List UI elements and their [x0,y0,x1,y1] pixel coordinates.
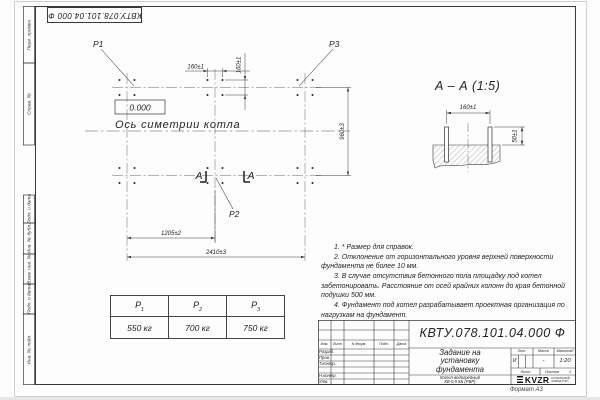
lit-value: И [511,355,518,368]
section-letter-right: А [246,170,254,182]
dim-full-span: 2410±3 [205,250,227,256]
load-header-p2: P2 [169,296,227,317]
load-label-p2: P2 [229,209,240,219]
margin-field-sprav-no: Справ. № [27,93,33,115]
plan-dimension-lines [127,53,351,257]
rev-col-podp: Подп. [374,340,394,349]
technical-notes: 1. * Размер для справок. 2. Отклонение о… [321,243,572,320]
margin-attribute-column: Перв. примен. Справ. № Подп. и дата Инв.… [23,6,35,385]
dim-bolt-spacing-v: 160±1 [237,57,243,74]
sign-row-tkontr: Т.контр. [319,361,344,367]
lit-label: Лит. [511,348,533,355]
sheets-label: Листов [545,370,559,374]
load-label-p3: P3 [329,39,340,49]
foundation-plan-view: P1 P3 P2 А А 160±1 160±1 960±3 1205±2 24… [60,25,360,270]
section-letter-left: А [194,170,202,182]
format-note: Формат А3 [510,387,543,393]
note-1: 1. * Размер для справок. [321,243,572,253]
dim-half-span: 1205±2 [161,231,182,237]
company-logo-cell: KVZR КОТЕЛЬНЫЙ ЗАВОД РЭП [511,375,576,385]
sheet-label: Лист [511,368,540,375]
kvzr-logo-icon [517,376,523,384]
load-table-value-row: 550 кг 700 кг 750 кг [111,317,285,339]
anchor-bolt-points [119,79,314,184]
top-stamp-box: КВТУ.078.101.04.000 Ф [47,7,142,23]
margin-field-podp-data-1: Подп. и дата [27,194,33,224]
margin-field-podp-data-2: Подп. и дата [27,284,33,314]
margin-field-inv-podl: Инв. № подл. [27,335,33,365]
designation-cell: КВТУ.078.101.04.000 Ф [409,320,576,348]
section-dim-height: 50±1 [513,129,519,142]
rev-col-list: Лист [331,340,344,349]
rev-col-izm: Изм. [318,340,331,349]
load-table: P1 P2 P3 550 кг 700 кг 750 кг [110,295,285,339]
section-dim-spacing: 160±1 [460,105,477,111]
margin-field-vzam-inv: Взам. инв. № [27,254,33,284]
mass-value: - [533,355,554,368]
kvzr-logo-text: KVZR [525,376,549,385]
note-3: 3. В случае отсутствия бетонного пола пл… [321,272,572,301]
section-cut-marks [200,171,250,182]
scale-value: 1:20 [554,355,576,368]
load-header-p1: P1 [111,296,169,317]
axis-caption: Ось симетрии котла [115,119,240,131]
mass-label: Масса [533,348,554,355]
product-line-2: КВ-0,9 КБ (РВР) [444,380,475,384]
section-a-a-view: А – А (1:5) 160±1 50±1 [415,65,560,180]
rev-col-ndocum: N докум. [344,340,374,349]
doc-title-line-3: фундамента [436,366,484,374]
sign-row-utv: Утв. [319,379,344,385]
plan-center-lines [85,69,350,261]
product-name-cell: Котел водогрейный КВ-0,9 КБ (РВР) [409,375,511,385]
margin-field-perv-primen: Перв. примен. [27,19,33,51]
dim-bolt-spacing-h: 160±1 [187,65,204,71]
sheets-cell: Листов 1 [540,368,576,375]
margin-field-inv-dubl: Инв. № дубл. [27,224,33,254]
load-value-p1: 550 кг [111,317,169,339]
load-table-header-row: P1 P2 P3 [111,296,285,317]
elevation-mark: 0.000 [129,103,151,113]
section-title: А – А (1:5) [434,79,500,93]
load-header-p3: P3 [227,296,285,317]
load-label-p1: P1 [93,39,104,49]
note-4: 4. Фундамент под котел разрабатывает про… [321,301,572,320]
top-stamp-code: КВТУ.078.101.04.000 Ф [48,11,142,20]
logo-caption-line-2: ЗАВОД РЭП [551,380,570,383]
dimension-arrowheads [127,70,349,258]
load-value-p2: 700 кг [169,317,227,339]
rev-col-data: Дата [394,340,409,349]
drawing-sheet: Перв. примен. Справ. № Подп. и дата Инв.… [0,0,600,400]
doc-title-cell: Задание на установку фундамента [409,348,511,375]
sheets-value: 1 [569,370,571,374]
note-2: 2. Отклонение от горизонтального уровня … [321,253,572,272]
load-value-p3: 750 кг [227,317,285,339]
dim-row-span: 960±3 [340,123,346,140]
title-block: Изм. Лист N докум. Подп. Дата Разраб. Пр… [318,320,576,385]
scale-label: Масштаб [554,348,576,355]
